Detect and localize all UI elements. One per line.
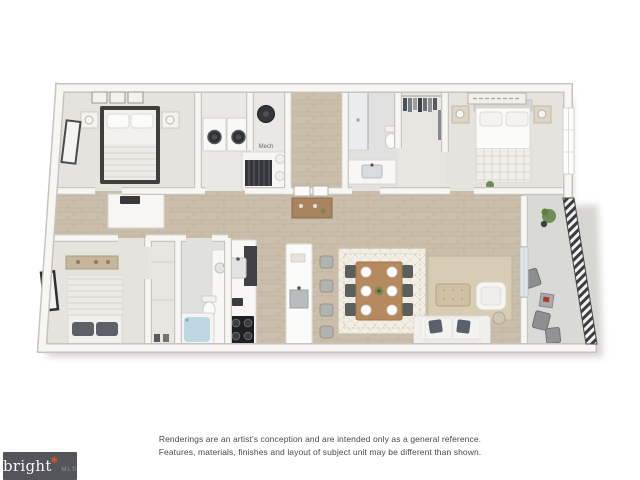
bed1-pillow — [131, 114, 153, 128]
picture-frame — [294, 186, 310, 196]
mech-label: Mech — [259, 144, 274, 150]
bed3-pillow — [72, 322, 94, 336]
picture-frame — [128, 92, 143, 103]
lamp-icon — [85, 116, 93, 124]
bar-stool — [320, 304, 333, 316]
shower — [348, 92, 368, 150]
plate — [387, 286, 397, 296]
bed2-pillow — [480, 112, 502, 126]
plate — [361, 305, 371, 315]
logo-asterisk-icon: ✱ — [51, 456, 59, 465]
plate — [387, 267, 397, 277]
window — [563, 108, 574, 174]
dining-chair — [345, 265, 356, 278]
wall-shelf — [66, 256, 118, 269]
plate — [361, 286, 371, 296]
floor-plan-rendering: Mech — [0, 0, 640, 480]
bed-sign — [468, 93, 526, 104]
side-table — [493, 312, 505, 324]
bed3-duvet — [68, 276, 122, 316]
bed1-pillow — [107, 114, 129, 128]
bar-stool — [320, 256, 333, 268]
plate — [387, 305, 397, 315]
dining-chair — [402, 265, 413, 278]
outdoor-chair — [545, 327, 560, 343]
bathtub — [180, 313, 214, 346]
toilet-tank — [202, 296, 216, 302]
lamp-icon — [456, 110, 464, 118]
bathroom-sink — [362, 165, 382, 178]
small-appliance — [232, 298, 243, 306]
bed2-pillow — [506, 112, 528, 126]
picture-frame — [313, 186, 328, 196]
dining-chair — [402, 303, 413, 316]
throw-pillow — [456, 319, 470, 333]
floorplan-page: Mech — [0, 0, 640, 480]
sofa — [414, 316, 490, 347]
foyer-floor — [288, 88, 345, 194]
cutting-board — [291, 254, 305, 262]
logo-brand-text: bright — [3, 459, 52, 474]
bright-mls-logo: bright ✱ MLS — [3, 452, 77, 480]
plate — [361, 267, 371, 277]
bathroom-sink — [215, 263, 225, 273]
bar-stool — [320, 280, 333, 292]
island-sink — [290, 290, 308, 308]
logo-suffix-text: MLS — [61, 466, 77, 473]
dining-chair — [402, 284, 413, 297]
hall-cabinet — [108, 194, 164, 228]
picture-frame — [92, 92, 107, 103]
cabinet-decor — [120, 196, 140, 204]
dishware — [276, 155, 285, 164]
throw-pillow — [428, 319, 443, 334]
bed2-blanket — [476, 148, 530, 182]
balcony-slider-door — [520, 247, 528, 297]
kitchen-sink — [230, 258, 246, 278]
faucet-icon — [236, 257, 240, 261]
kitchen-pantry — [242, 152, 286, 190]
disclaimer-line2: Features, materials, finishes and layout… — [0, 446, 640, 459]
faucet-icon — [297, 286, 301, 290]
lamp-icon — [538, 110, 546, 118]
dining-chair — [345, 303, 356, 316]
closet3-floor — [148, 238, 178, 348]
dishware — [276, 172, 285, 181]
bar-stool — [320, 326, 333, 338]
dining-set — [345, 262, 413, 320]
kitchen-counter — [228, 240, 257, 347]
bed3-pillow — [96, 322, 118, 336]
bed1-duvet — [104, 144, 156, 180]
outdoor-table — [539, 293, 554, 308]
laundry-appliances — [203, 118, 250, 151]
ottoman — [436, 284, 470, 306]
lamp-icon — [166, 116, 174, 124]
console-table — [292, 198, 332, 218]
dining-chair — [345, 284, 356, 297]
faucet-icon — [370, 163, 373, 166]
disclaimer-text: Renderings are an artist's conception an… — [0, 433, 640, 459]
disclaimer-line1: Renderings are an artist's conception an… — [0, 433, 640, 446]
picture-frame — [110, 92, 125, 103]
